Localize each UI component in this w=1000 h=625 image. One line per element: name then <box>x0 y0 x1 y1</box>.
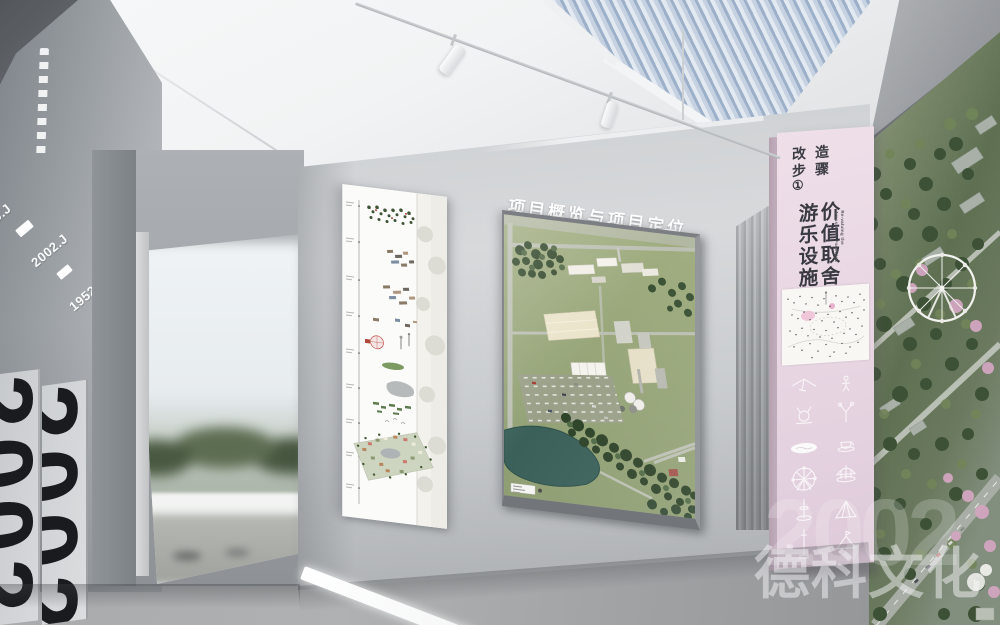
window-inner-shadow <box>137 234 304 584</box>
banner-floor-shadow <box>773 564 877 576</box>
floor-shadow <box>0 584 300 608</box>
wave-pool-icon <box>791 442 817 454</box>
carousel-icon <box>837 465 855 483</box>
banner-icon-grid <box>777 366 874 565</box>
suspension-wire <box>682 30 684 120</box>
pyramid-slide-icon <box>836 500 856 517</box>
banner-site-map <box>782 284 869 366</box>
step-banner: 改造 步骤 ① 游乐设施 价值取舍 Re-valuing the Amuseme… <box>777 126 874 569</box>
banner-subtitle-en: Amusement Facilities <box>834 211 839 263</box>
banner-step-number: ① <box>792 177 804 194</box>
ferris-wheel-icon <box>792 466 816 491</box>
window <box>137 234 304 584</box>
site-plan-image <box>504 214 695 518</box>
banner-subtitle-en: Re-valuing the <box>840 210 845 245</box>
site-model-board <box>502 210 700 530</box>
slingshot-tower-icon <box>839 402 854 423</box>
exhibition-hall-rendering: B.J 2002.J 1952.J 2002 2002 <box>0 0 1000 625</box>
teacup-ride-icon <box>838 442 854 452</box>
window-pillar <box>92 150 138 586</box>
hang-glider-icon <box>792 378 816 392</box>
window-jamb <box>136 232 149 576</box>
timeline-graphic <box>343 184 447 529</box>
drop-spindle-icon <box>797 499 811 521</box>
swing-figure-icon <box>842 376 850 392</box>
animal-coaster-icon <box>796 407 812 424</box>
timeline-panel <box>342 184 446 529</box>
